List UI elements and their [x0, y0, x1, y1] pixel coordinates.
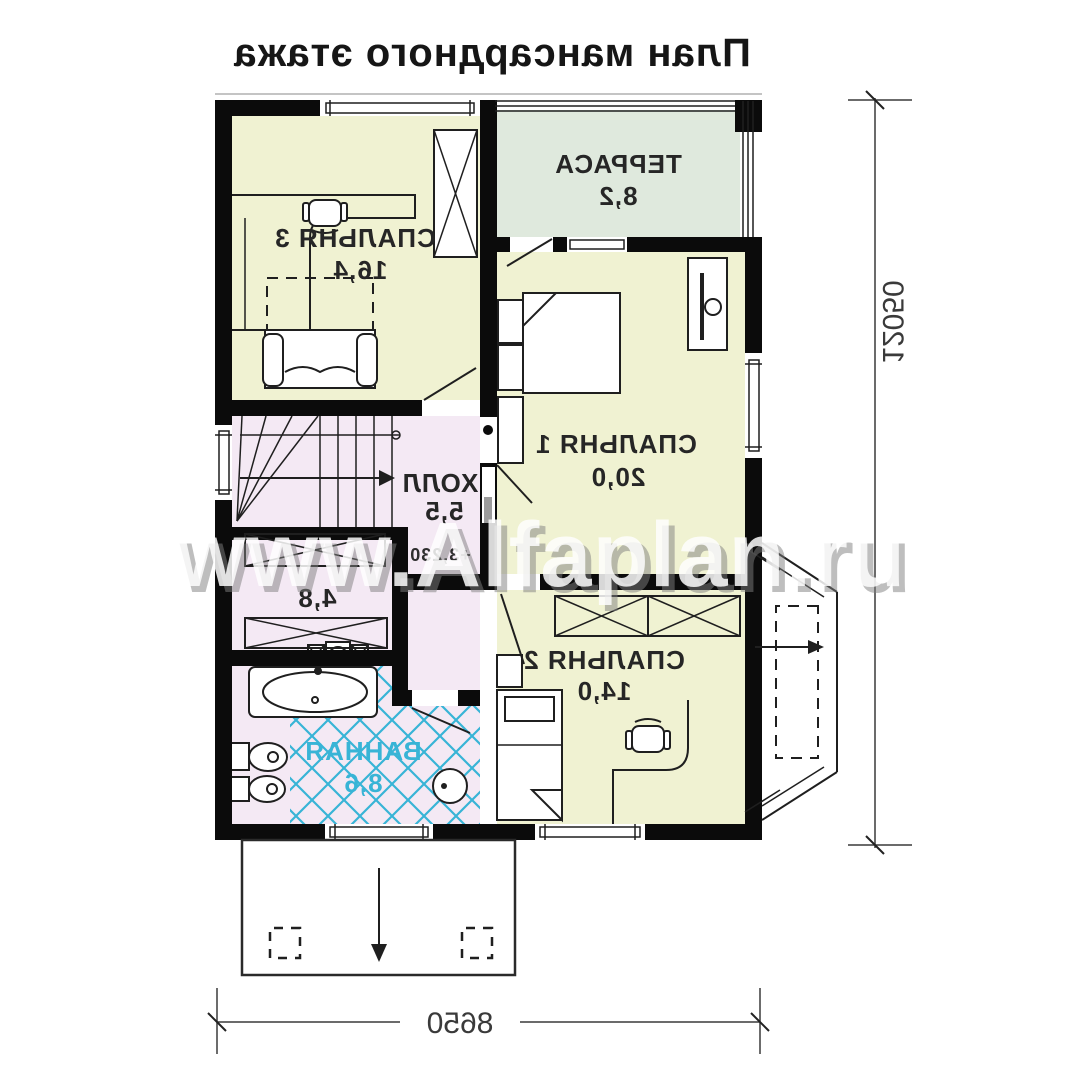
window-bathroom-bottom — [325, 824, 433, 840]
floor-plan-sheet: План мансардного этажа — [0, 0, 1080, 1080]
room-label-terrace: ТЕРРАСА — [554, 149, 682, 179]
sink-icon — [433, 769, 467, 803]
dimension-width-label: 8650 — [427, 1007, 494, 1040]
room-label-bedroom1: СПАЛЬНЯ 1 — [535, 429, 697, 459]
tv-stand-icon — [688, 258, 727, 350]
window-bedroom1-side — [745, 353, 762, 458]
room-area-terrace: 8,2 — [598, 181, 637, 211]
window-stairs-side — [215, 425, 232, 500]
sofa-icon — [263, 330, 377, 388]
toilet-icon — [231, 743, 287, 771]
bay-direction-arrow — [808, 640, 824, 654]
room-label-bedroom2: СПАЛЬНЯ 2 — [523, 645, 685, 675]
door-bathroom — [412, 690, 458, 706]
watermark-text: www.Alfaplan.ru — [173, 504, 906, 606]
window-bedroom3-top — [320, 100, 480, 116]
nightstand-icon — [497, 655, 522, 687]
room-area-bathroom: 8,6 — [343, 768, 382, 798]
dimension-horizontal: 8650 — [208, 988, 769, 1054]
room-label-bedroom3: СПАЛЬНЯ 3 — [274, 223, 436, 253]
nightstand-icon — [498, 397, 523, 463]
room-label-bathroom: ВАННАЯ — [304, 736, 421, 766]
bathtub-icon — [249, 667, 377, 717]
floor-plan-canvas: План мансардного этажа — [0, 0, 1080, 1080]
room-area-bedroom2: 14,0 — [577, 676, 632, 706]
bed-icon — [497, 690, 562, 820]
dimension-depth-label: 12050 — [876, 280, 909, 363]
room-area-bedroom1: 20,0 — [591, 462, 646, 492]
dimension-vertical: 12050 — [848, 91, 912, 854]
room-label-hall: ХОЛЛ — [402, 468, 479, 498]
window-bedroom1-terrace — [567, 237, 627, 252]
room-area-bedroom3: 16,4 — [333, 255, 388, 285]
watermark: www.Alfaplan.ru www.Alfaplan.ru — [173, 504, 912, 612]
window-bedroom2-bottom — [535, 824, 645, 840]
plan-title: План мансардного этажа — [233, 31, 751, 75]
porch — [242, 840, 515, 975]
bidet-icon — [231, 776, 285, 802]
